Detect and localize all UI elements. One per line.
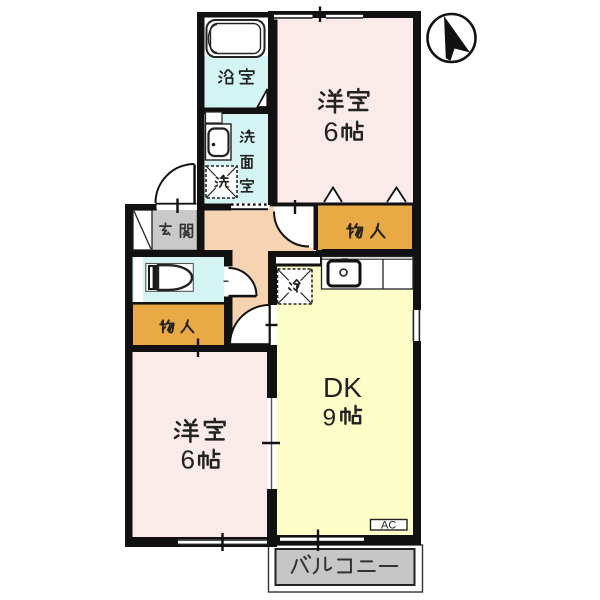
svg-text:DK: DK — [323, 372, 362, 403]
svg-text:6: 6 — [324, 117, 339, 147]
svg-text:9: 9 — [323, 405, 337, 432]
svg-text:AC: AC — [381, 519, 396, 531]
svg-text:6: 6 — [181, 445, 195, 475]
